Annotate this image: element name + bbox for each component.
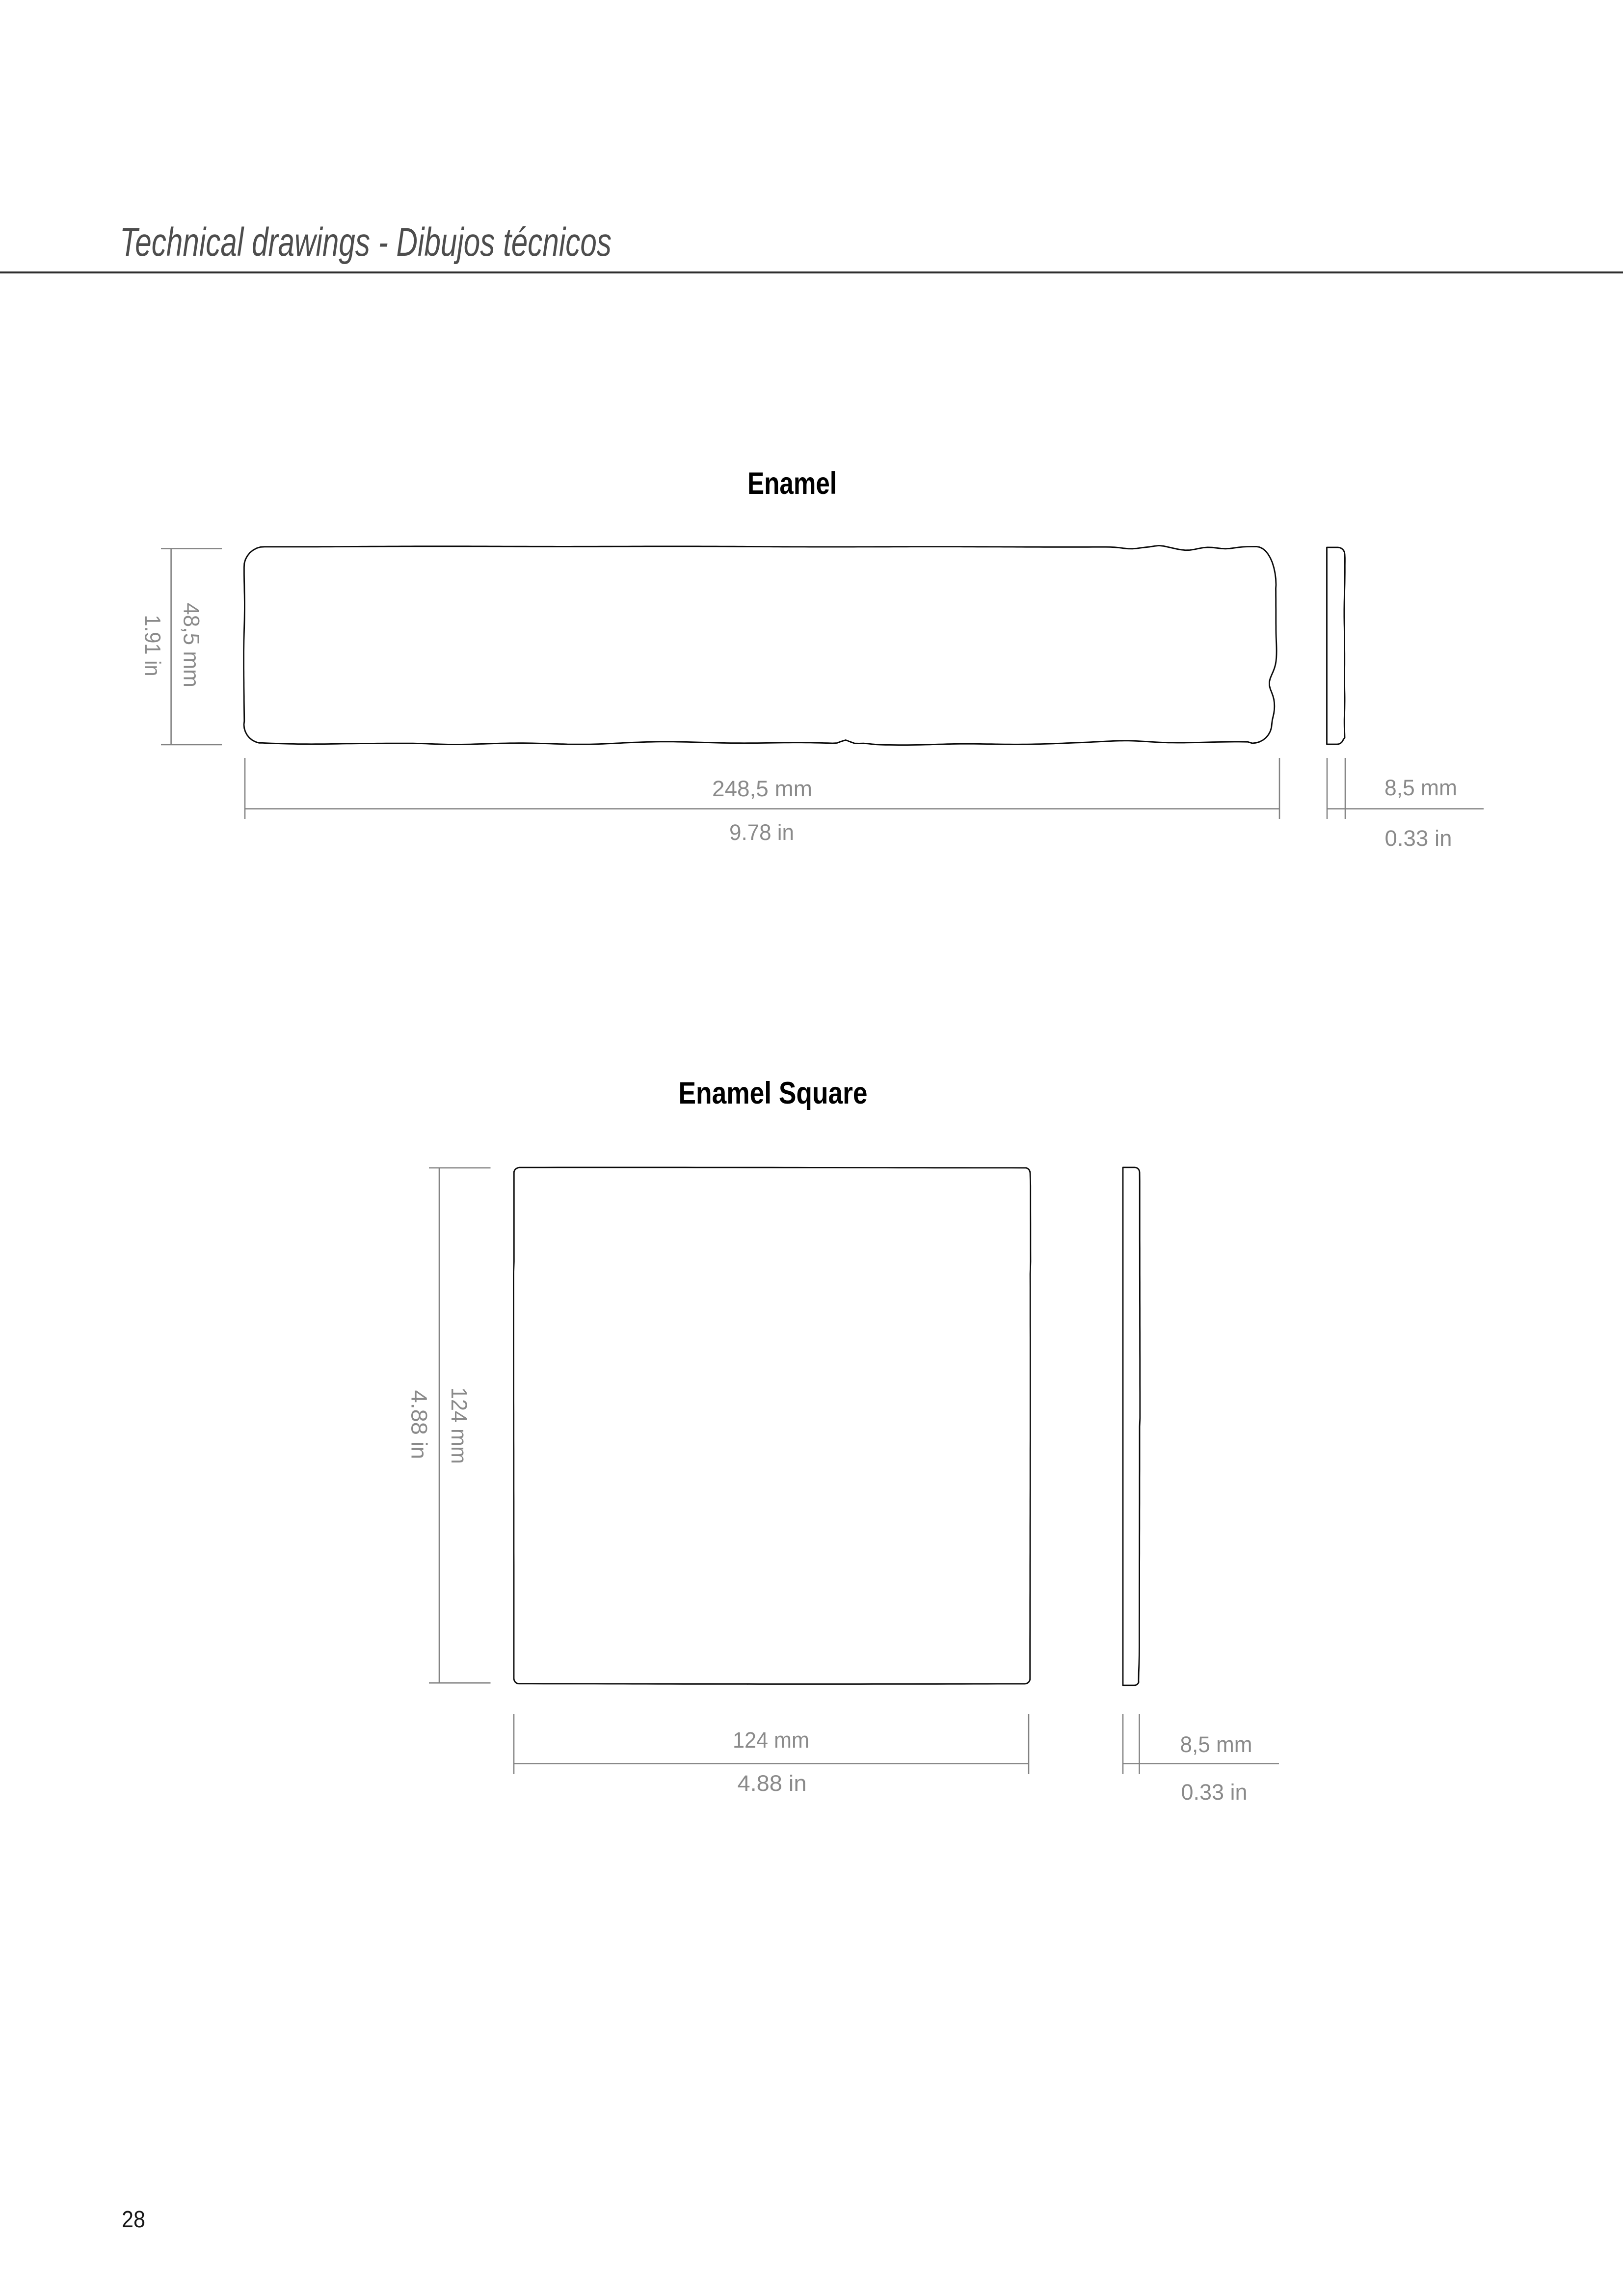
svg-text:Enamel: Enamel: [747, 466, 837, 501]
svg-text:248,5 mm: 248,5 mm: [712, 776, 812, 801]
svg-text:8,5 mm: 8,5 mm: [1384, 775, 1457, 800]
svg-text:28: 28: [122, 2207, 145, 2233]
svg-text:124 mm: 124 mm: [733, 1728, 809, 1753]
svg-text:8,5 mm: 8,5 mm: [1180, 1732, 1252, 1757]
svg-text:1.91 in: 1.91 in: [140, 615, 165, 676]
svg-text:48,5 mm: 48,5 mm: [179, 603, 204, 687]
svg-text:4.88 in: 4.88 in: [738, 1771, 807, 1796]
svg-text:Technical drawings - Dibujos t: Technical drawings - Dibujos técnicos: [120, 220, 612, 265]
svg-text:124 mm: 124 mm: [447, 1387, 472, 1464]
svg-text:4.88 in: 4.88 in: [407, 1390, 432, 1459]
svg-text:Enamel Square: Enamel Square: [679, 1076, 868, 1110]
svg-text:9.78 in: 9.78 in: [729, 820, 794, 845]
svg-text:0.33 in: 0.33 in: [1181, 1780, 1248, 1805]
svg-text:0.33 in: 0.33 in: [1385, 826, 1452, 851]
